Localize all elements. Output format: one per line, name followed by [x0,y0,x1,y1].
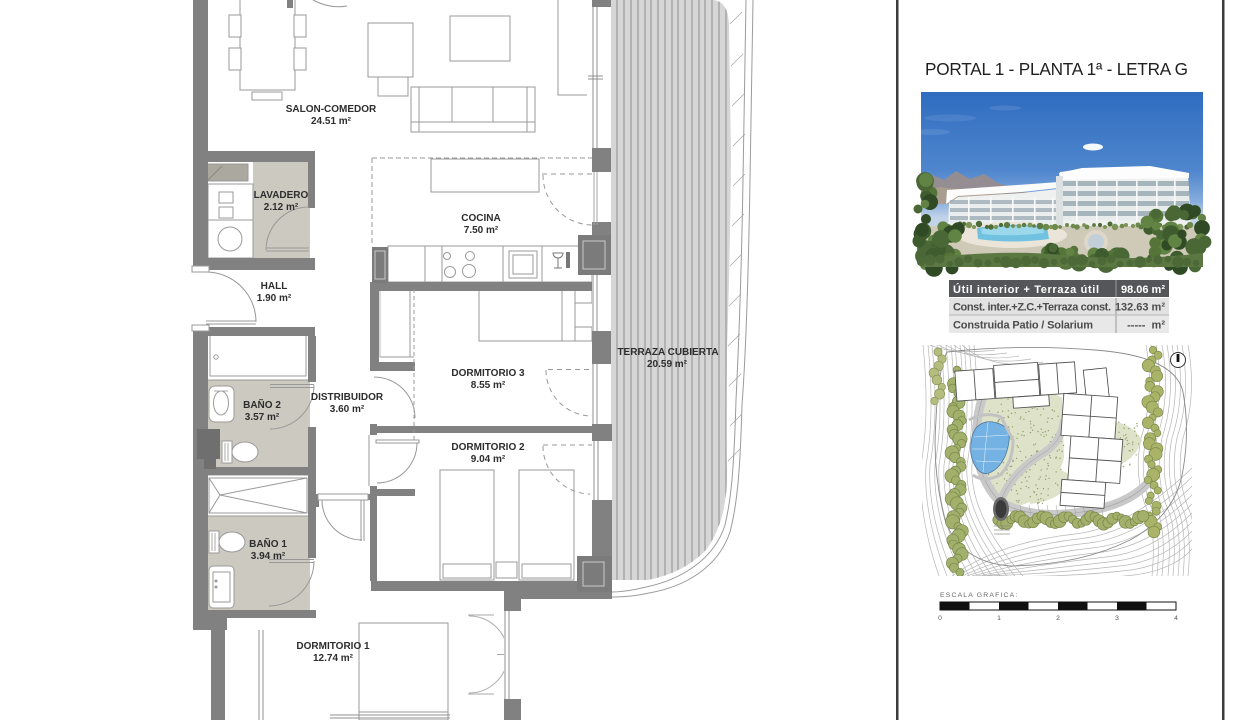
svg-text:COCINA: COCINA [461,213,500,224]
svg-text:DORMITORIO 3: DORMITORIO 3 [451,368,525,379]
svg-text:0: 0 [938,615,942,622]
svg-text:3: 3 [1115,615,1119,622]
svg-text:SALON-COMEDOR: SALON-COMEDOR [286,104,377,115]
svg-text:Construida Patio / Solarium: Construida Patio / Solarium [953,320,1093,332]
svg-text:8.55 m²: 8.55 m² [471,380,506,391]
svg-text:DORMITORIO 1: DORMITORIO 1 [296,641,370,652]
svg-text:1: 1 [997,615,1001,622]
svg-text:HALL: HALL [261,281,288,292]
svg-text:98.06 m²: 98.06 m² [1121,284,1165,296]
svg-text:----- m²: ----- m² [1127,320,1165,332]
svg-text:PORTAL 1 - PLANTA 1ª - LETRA G: PORTAL 1 - PLANTA 1ª - LETRA G [925,59,1188,79]
svg-text:12.74 m²: 12.74 m² [313,653,354,664]
svg-text:24.51 m²: 24.51 m² [311,116,352,127]
svg-text:DORMITORIO 2: DORMITORIO 2 [451,442,525,453]
svg-text:132.63 m²: 132.63 m² [1115,302,1165,314]
svg-text:TERRAZA CUBIERTA: TERRAZA CUBIERTA [617,347,718,358]
svg-text:4: 4 [1174,615,1178,622]
svg-text:3.60 m²: 3.60 m² [330,404,365,415]
svg-text:1.90 m²: 1.90 m² [257,293,292,304]
svg-text:9.04 m²: 9.04 m² [471,454,506,465]
svg-text:BAÑO 2: BAÑO 2 [243,398,281,411]
svg-text:3.57 m²: 3.57 m² [245,412,280,423]
svg-text:3.94 m²: 3.94 m² [251,551,286,562]
svg-text:ESCALA GRAFICA:: ESCALA GRAFICA: [940,592,1018,599]
svg-text:2: 2 [1056,615,1060,622]
svg-text:DISTRIBUIDOR: DISTRIBUIDOR [311,392,384,403]
svg-text:LAVADERO: LAVADERO [254,190,309,201]
svg-text:20.59 m²: 20.59 m² [647,359,688,370]
svg-text:BAÑO 1: BAÑO 1 [249,537,287,550]
svg-text:Const. inter.+Z.C.+Terraza con: Const. inter.+Z.C.+Terraza const. [953,302,1111,314]
svg-text:Útil interior + Terraza útil: Útil interior + Terraza útil [953,283,1099,296]
svg-text:2.12 m²: 2.12 m² [264,202,299,213]
svg-text:7.50 m²: 7.50 m² [464,225,499,236]
